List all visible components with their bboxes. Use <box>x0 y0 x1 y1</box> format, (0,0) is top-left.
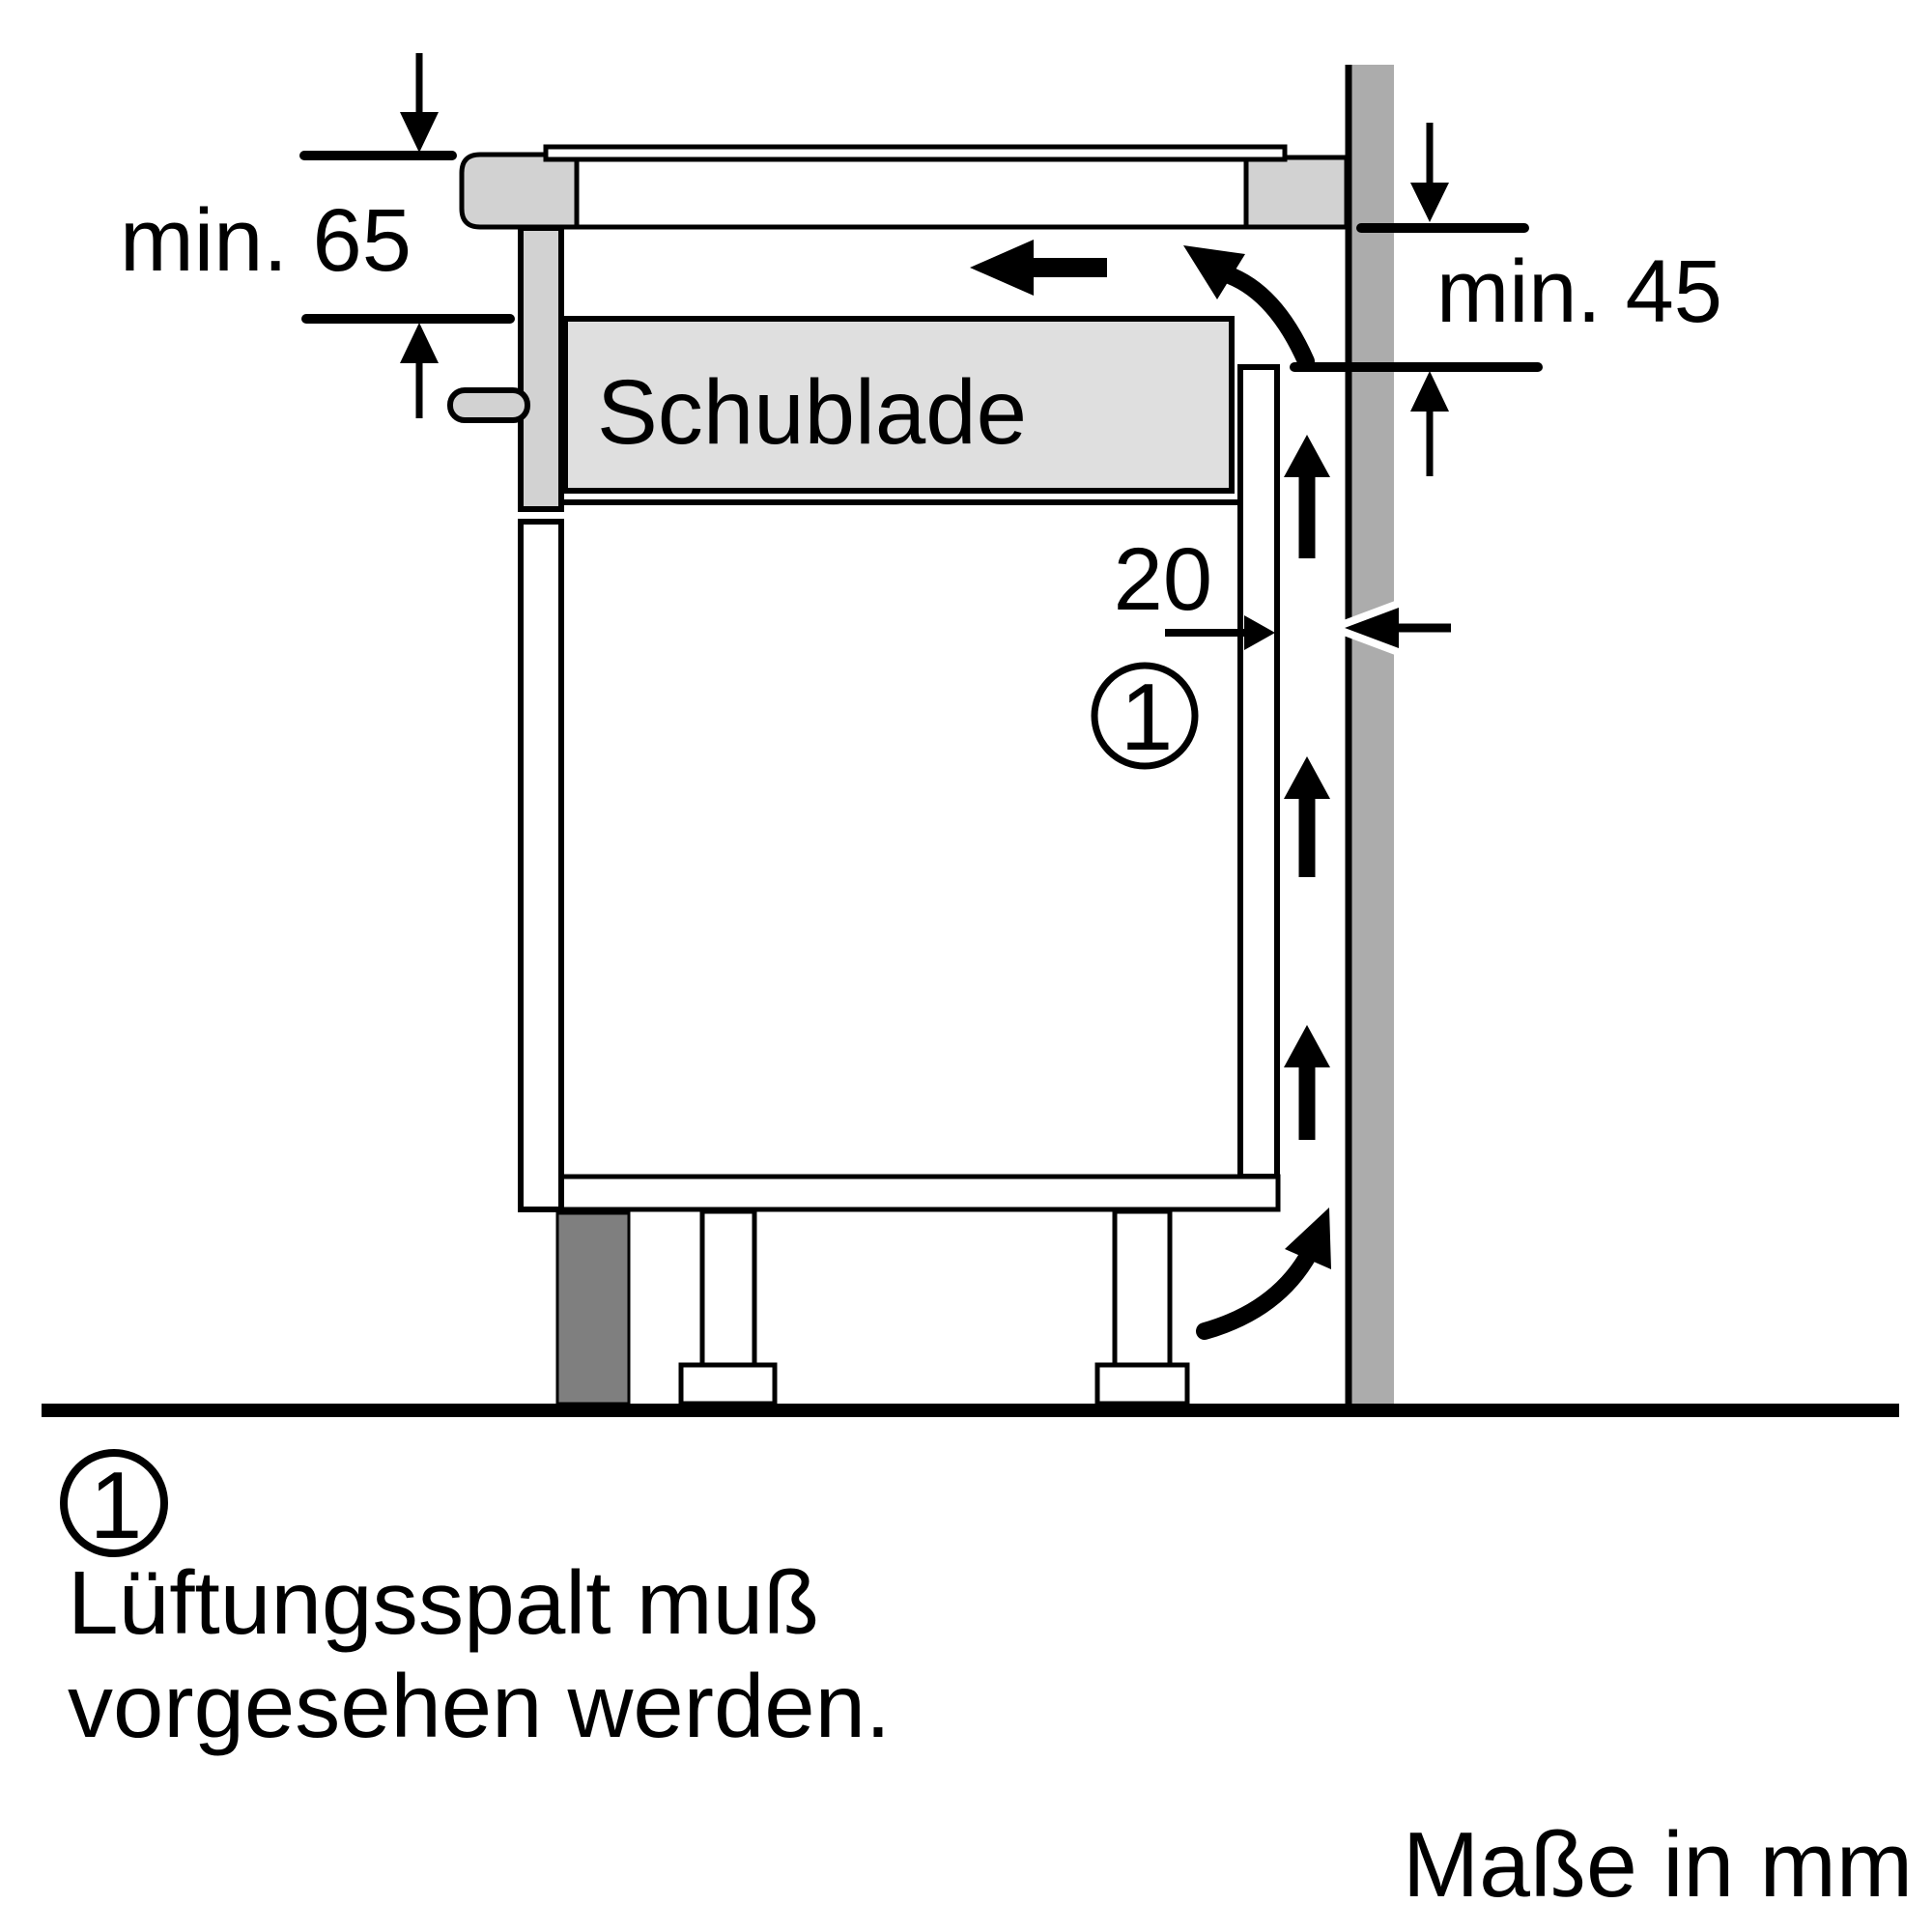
airflow-out-arrow <box>970 240 1107 296</box>
airflow-up-arrow-3 <box>1284 1025 1330 1140</box>
cabinet: Schublade <box>450 228 1278 1404</box>
leg-shaft <box>1115 1211 1170 1367</box>
leg-shaft <box>702 1211 754 1367</box>
callout-1-marker: 1 <box>1094 664 1195 770</box>
cabinet-leg-rear <box>1097 1211 1187 1404</box>
wall-fill <box>1350 65 1394 1404</box>
leg-foot <box>1097 1365 1187 1404</box>
worktop-and-hob <box>462 147 1347 227</box>
wall <box>1349 65 1394 1404</box>
footnote: 1 Lüftungsspalt muß vorgesehen werden. <box>64 1452 891 1756</box>
up-arrow-icon <box>1284 435 1330 477</box>
hob-front-trim <box>462 155 577 227</box>
callout-number: 1 <box>1121 664 1174 770</box>
leg-foot <box>681 1365 775 1404</box>
installation-diagram-page: Schublade min. 65 min. 45 <box>0 0 1932 1932</box>
dimension-min65: min. 65 <box>120 53 510 418</box>
cabinet-door-panel <box>521 522 561 1209</box>
down-arrow-icon <box>1410 183 1449 222</box>
up-arrow-icon <box>400 323 439 363</box>
hob-glass-top <box>546 147 1285 159</box>
cabinet-back-panel <box>1240 367 1277 1177</box>
up-arrow-icon <box>1410 371 1449 412</box>
dimension-label-20: 20 <box>1114 530 1212 629</box>
left-arrow-icon <box>970 240 1034 296</box>
cabinet-leg-front <box>681 1211 775 1404</box>
installation-diagram: Schublade min. 65 min. 45 <box>0 0 1932 1932</box>
drawer-handle <box>450 390 527 420</box>
airflow-up-arrow-1 <box>1284 435 1330 558</box>
footnote-line-2: vorgesehen werden. <box>68 1656 891 1756</box>
worktop-rear-section <box>1246 157 1347 227</box>
units-note: Maße in mm <box>1403 1813 1913 1917</box>
dimension-label-min45: min. 45 <box>1436 242 1722 341</box>
plinth-panel <box>557 1213 629 1404</box>
footnote-line-1: Lüftungsspalt muß <box>68 1552 819 1653</box>
cabinet-bottom-board <box>523 1177 1278 1209</box>
curve <box>1227 274 1306 361</box>
up-arrow-icon <box>1284 756 1330 799</box>
left-arrow-with-outline <box>1345 608 1455 648</box>
floor-line <box>42 1404 1899 1417</box>
footnote-number: 1 <box>90 1452 143 1558</box>
dimension-gap20: 20 <box>1114 530 1455 650</box>
worktop-section <box>577 158 1246 227</box>
dimension-label-min65: min. 65 <box>120 191 412 290</box>
down-arrow-icon <box>400 112 439 153</box>
drawer-front-panel <box>521 228 561 509</box>
up-arrow-icon <box>1284 1025 1330 1067</box>
airflow-up-arrow-2 <box>1284 756 1330 877</box>
drawer-label: Schublade <box>597 361 1027 464</box>
airflow-in-arrow-bottom <box>1205 1207 1331 1331</box>
